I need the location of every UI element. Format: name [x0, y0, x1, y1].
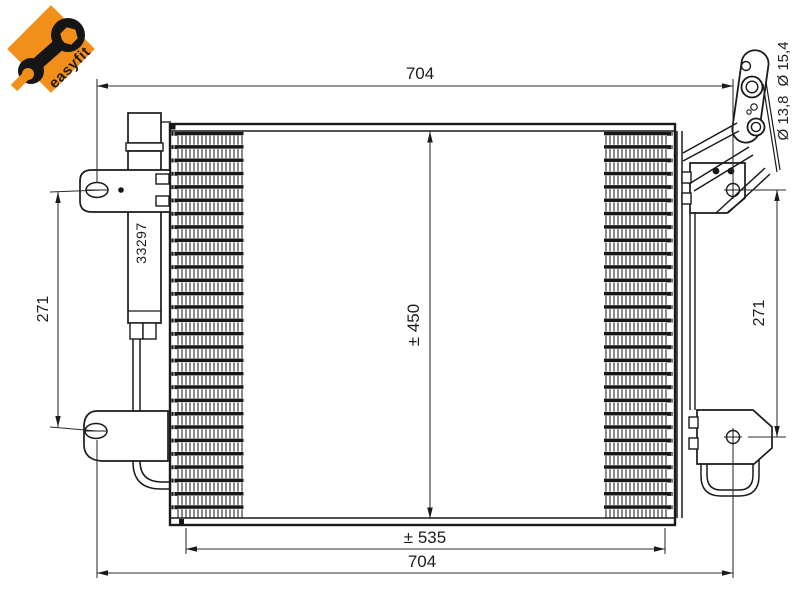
dim-label-right-spacing: 271 [751, 300, 768, 327]
dim-label-left-spacing: 271 [35, 296, 52, 323]
dim-label-core-height: ± 450 [404, 304, 423, 346]
receiver-drier: 33297 [126, 113, 171, 339]
part-number-label: 33297 [133, 222, 149, 263]
bolt-hole [742, 62, 751, 71]
left-top-bracket [80, 170, 170, 212]
condenser-technical-drawing: easyfit 33297 [0, 0, 800, 594]
right-fin-band [604, 132, 667, 518]
dim-label-bottom-width: 704 [408, 552, 436, 571]
port-label-small: Ø 13,8 [775, 95, 792, 140]
dim-label-top-width: 704 [406, 64, 434, 83]
technical-drawing-page: easyfit 33297 [0, 0, 800, 594]
dim-core-width: ± 535 [186, 528, 665, 554]
right-bottom-pipe [701, 460, 759, 496]
left-fin-band [178, 132, 244, 518]
port-label-large: Ø 15,4 [775, 41, 792, 86]
dim-right-bracket-spacing: 271 [741, 190, 786, 437]
port-diameter-labels: Ø 13,8 Ø 15,4 [775, 41, 792, 140]
dim-label-core-width: ± 535 [404, 528, 446, 547]
easyfit-logo: easyfit [7, 5, 95, 93]
left-tube-ends [172, 132, 178, 518]
right-tube-ends [667, 132, 673, 518]
dim-left-bracket-spacing: 271 [35, 190, 102, 431]
